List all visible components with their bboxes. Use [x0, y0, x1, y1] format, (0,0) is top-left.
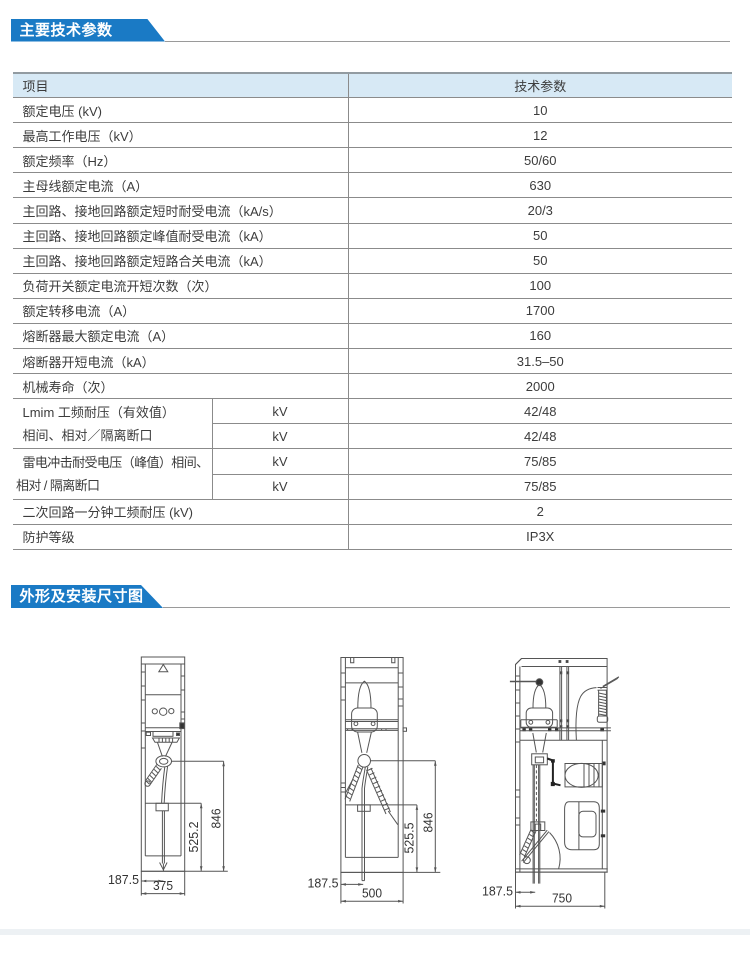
svg-text:846: 846 — [209, 809, 224, 829]
svg-text:525.2: 525.2 — [186, 822, 201, 853]
svg-text:846: 846 — [420, 813, 435, 833]
svg-text:525.5: 525.5 — [402, 823, 417, 854]
svg-text:750: 750 — [552, 891, 572, 906]
svg-text:187.5: 187.5 — [108, 872, 139, 887]
svg-text:187.5: 187.5 — [308, 876, 339, 891]
svg-text:500: 500 — [362, 886, 382, 901]
svg-text:375: 375 — [153, 878, 173, 893]
svg-text:187.5: 187.5 — [482, 883, 513, 898]
